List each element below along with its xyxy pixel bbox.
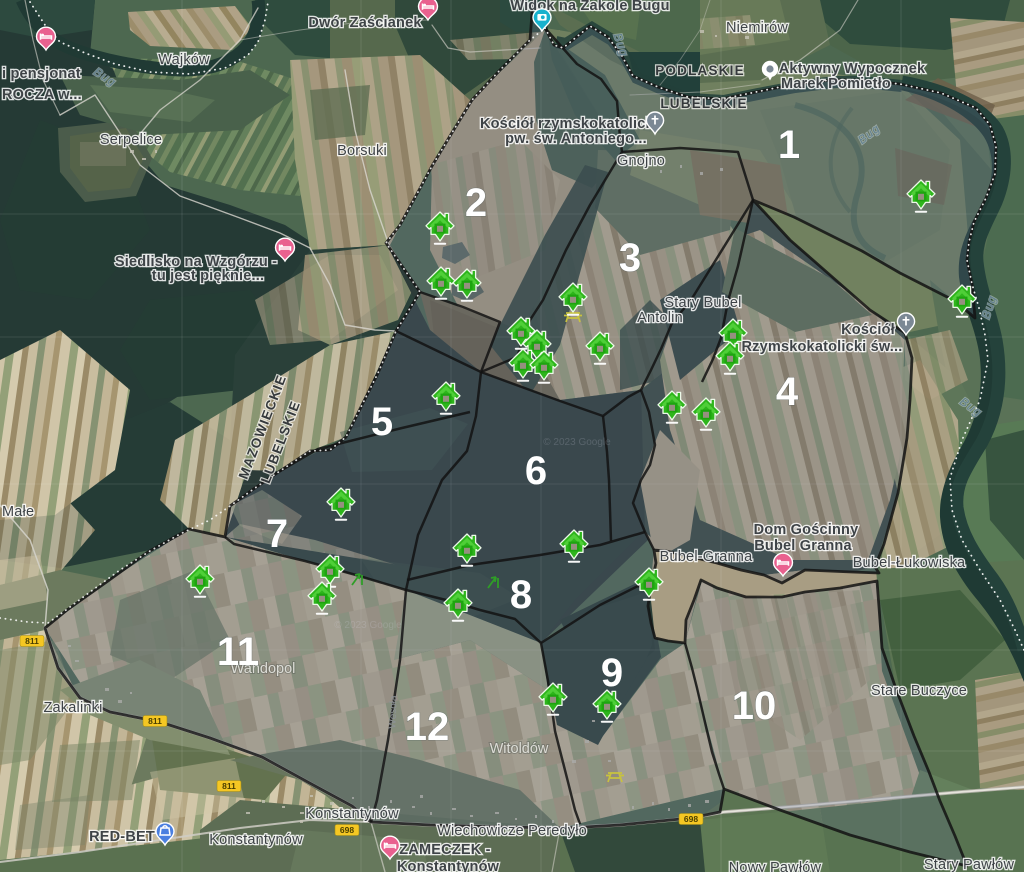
svg-text:811: 811 — [148, 716, 162, 726]
svg-text:811: 811 — [25, 636, 39, 646]
svg-text:PODLASKIE: PODLASKIE — [655, 63, 745, 78]
svg-text:Nowy Pawłów: Nowy Pawłów — [729, 860, 822, 872]
svg-text:Małe: Małe — [2, 504, 34, 520]
svg-text:LUBELSKIE: LUBELSKIE — [660, 96, 747, 111]
svg-text:1: 1 — [778, 123, 800, 167]
svg-text:Gnojno: Gnojno — [617, 153, 665, 169]
svg-text:Antolin: Antolin — [637, 310, 683, 326]
svg-text:Bubel-Łukowiska: Bubel-Łukowiska — [853, 555, 966, 571]
svg-text:pw. św. Antoniego...: pw. św. Antoniego... — [505, 131, 647, 147]
svg-text:ROCZA w...: ROCZA w... — [2, 87, 82, 103]
svg-text:© 2023 Google: © 2023 Google — [543, 437, 611, 448]
svg-text:4: 4 — [776, 370, 799, 414]
svg-text:RED-BET: RED-BET — [89, 829, 155, 845]
svg-text:Zakalinki: Zakalinki — [43, 700, 102, 716]
svg-text:5: 5 — [371, 400, 393, 444]
svg-text:698: 698 — [340, 825, 354, 835]
svg-text:Dom Gościnny: Dom Gościnny — [754, 522, 859, 538]
svg-text:12: 12 — [405, 705, 450, 749]
svg-text:Serpelice: Serpelice — [100, 132, 162, 148]
svg-text:Konstantynów: Konstantynów — [209, 832, 303, 848]
svg-text:10: 10 — [732, 684, 777, 728]
svg-text:Bubel-Granna: Bubel-Granna — [660, 549, 753, 565]
svg-text:3: 3 — [619, 236, 641, 280]
svg-text:7: 7 — [266, 512, 288, 556]
svg-text:11: 11 — [217, 630, 259, 674]
svg-text:8: 8 — [510, 573, 532, 617]
svg-text:Konstantynów: Konstantynów — [397, 859, 500, 872]
svg-text:Stare Buczyce: Stare Buczyce — [871, 683, 967, 699]
svg-text:2: 2 — [465, 181, 487, 225]
svg-text:698: 698 — [684, 814, 698, 824]
svg-text:6: 6 — [525, 449, 547, 493]
svg-text:tu jest pięknie...: tu jest pięknie... — [152, 268, 264, 284]
svg-text:i pensjonat: i pensjonat — [2, 66, 81, 82]
svg-text:Dwór Zaścianek: Dwór Zaścianek — [308, 15, 422, 31]
svg-text:ZAMECZEK -: ZAMECZEK - — [399, 842, 490, 858]
svg-text:811: 811 — [222, 781, 236, 791]
svg-text:Niemirów: Niemirów — [726, 20, 788, 36]
svg-text:Wesoła: Wesoła — [387, 695, 399, 729]
svg-text:Marek Pomietło: Marek Pomietło — [781, 76, 891, 92]
svg-text:Stary Pawłów: Stary Pawłów — [924, 857, 1015, 872]
svg-text:Wajków: Wajków — [158, 52, 210, 68]
svg-text:Witoldów: Witoldów — [490, 741, 549, 757]
svg-text:Kościół rzymskokatolicki: Kościół rzymskokatolicki — [480, 116, 658, 132]
svg-text:Konstantynów: Konstantynów — [305, 806, 399, 822]
svg-text:Stary Bubel: Stary Bubel — [664, 295, 741, 311]
svg-text:Rzymskokatolicki św...: Rzymskokatolicki św... — [741, 339, 902, 355]
svg-text:Bubel Granna: Bubel Granna — [754, 538, 852, 554]
svg-text:Kościół: Kościół — [841, 322, 895, 338]
svg-text:9: 9 — [601, 651, 623, 695]
svg-text:© 2023 Google: © 2023 Google — [334, 620, 402, 631]
svg-text:Wiechowicze Peredyło: Wiechowicze Peredyło — [437, 823, 587, 839]
svg-text:Borsuki: Borsuki — [337, 143, 387, 159]
svg-text:Aktywny Wypocznek: Aktywny Wypocznek — [779, 61, 926, 77]
